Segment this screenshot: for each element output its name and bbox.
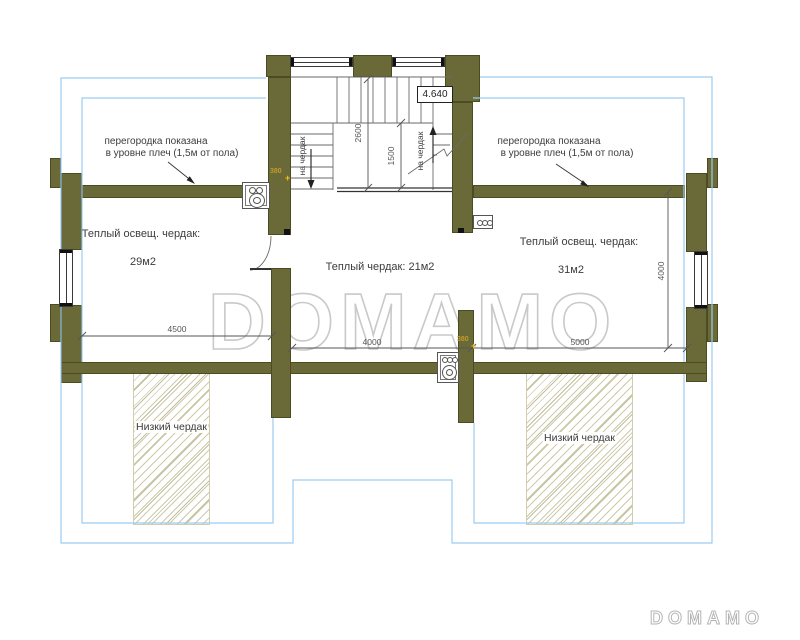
washer-drum-ring-icon: [446, 369, 453, 376]
roof-outline-inner-right: [473, 98, 684, 523]
radiator-dot-icon: [487, 220, 493, 226]
wall-thickness-label-a: 380: [270, 168, 282, 175]
stove-fixture-icon: [242, 182, 270, 209]
partition-note-right-line1: перегородка показана: [497, 136, 600, 147]
radiator-fixture-icon: [473, 215, 493, 229]
window-end-cap: [695, 305, 707, 308]
floor-plan: DOMAMO: [0, 0, 800, 640]
window-end-cap: [695, 252, 707, 255]
stair-landing-edge: [337, 188, 452, 192]
partition-note-left-line1: перегородка показана: [104, 136, 207, 147]
room-area-right: 31м2: [558, 264, 584, 276]
door-arc: [250, 236, 271, 270]
roof-outline-inner-left: [82, 98, 273, 523]
washer-dot-icon: [452, 357, 458, 363]
dim-stair-run: 1500: [386, 147, 396, 166]
burner-ring-icon: [253, 197, 261, 204]
survey-marker: +: [285, 173, 290, 183]
survey-marker: +: [471, 341, 476, 351]
dimension-lines: [78, 75, 691, 352]
window-top-2: [392, 57, 445, 67]
brand-logo: DOMAMO: [650, 608, 764, 629]
window-left: [59, 249, 73, 307]
stair-arrow-up: [430, 126, 437, 135]
wall-end-tick-right: [458, 228, 464, 233]
wall-end-tick-left: [284, 229, 290, 235]
dim-left-width: 4500: [168, 324, 187, 334]
plan-linework: [0, 0, 800, 640]
window-glass-line: [66, 252, 67, 304]
window-right: [694, 251, 708, 309]
partition-note-left-line2: в уровне плеч (1,5м от пола): [106, 148, 239, 159]
stair-label-down: на чердак: [297, 137, 307, 176]
leader-lines: [168, 162, 589, 187]
window-end-cap: [291, 58, 294, 66]
window-end-cap: [349, 58, 352, 66]
stair-arrow-down: [308, 180, 315, 189]
room-area-left: 29м2: [130, 256, 156, 268]
window-end-cap: [60, 250, 72, 253]
partition-note-right-line2: в уровне плеч (1,5м от пола): [501, 148, 634, 159]
wall-thickness-label-b: 380: [457, 336, 469, 343]
window-glass-line: [293, 62, 350, 63]
window-glass-line: [701, 254, 702, 306]
dim-center-width: 4000: [363, 337, 382, 347]
window-end-cap: [393, 58, 396, 66]
dim-right-height: 4000: [656, 262, 666, 281]
dim-stair-total: 2600: [353, 124, 363, 143]
door-swing: [250, 236, 271, 270]
level-mark: 4.640: [417, 86, 453, 103]
room-label-center: Теплый чердак: 21м2: [326, 261, 435, 273]
window-end-cap: [60, 303, 72, 306]
dim-right-width: 5000: [571, 337, 590, 347]
room-label-left: Теплый освещ. чердак:: [82, 228, 200, 240]
window-glass-line: [395, 62, 442, 63]
window-end-cap: [441, 58, 444, 66]
washer-fixture-icon: [437, 352, 459, 383]
room-label-right: Теплый освещ. чердак:: [520, 236, 638, 248]
window-top-1: [290, 57, 353, 67]
dimension-ticks: [78, 75, 691, 352]
stair-label-up: на чердак: [415, 132, 425, 171]
